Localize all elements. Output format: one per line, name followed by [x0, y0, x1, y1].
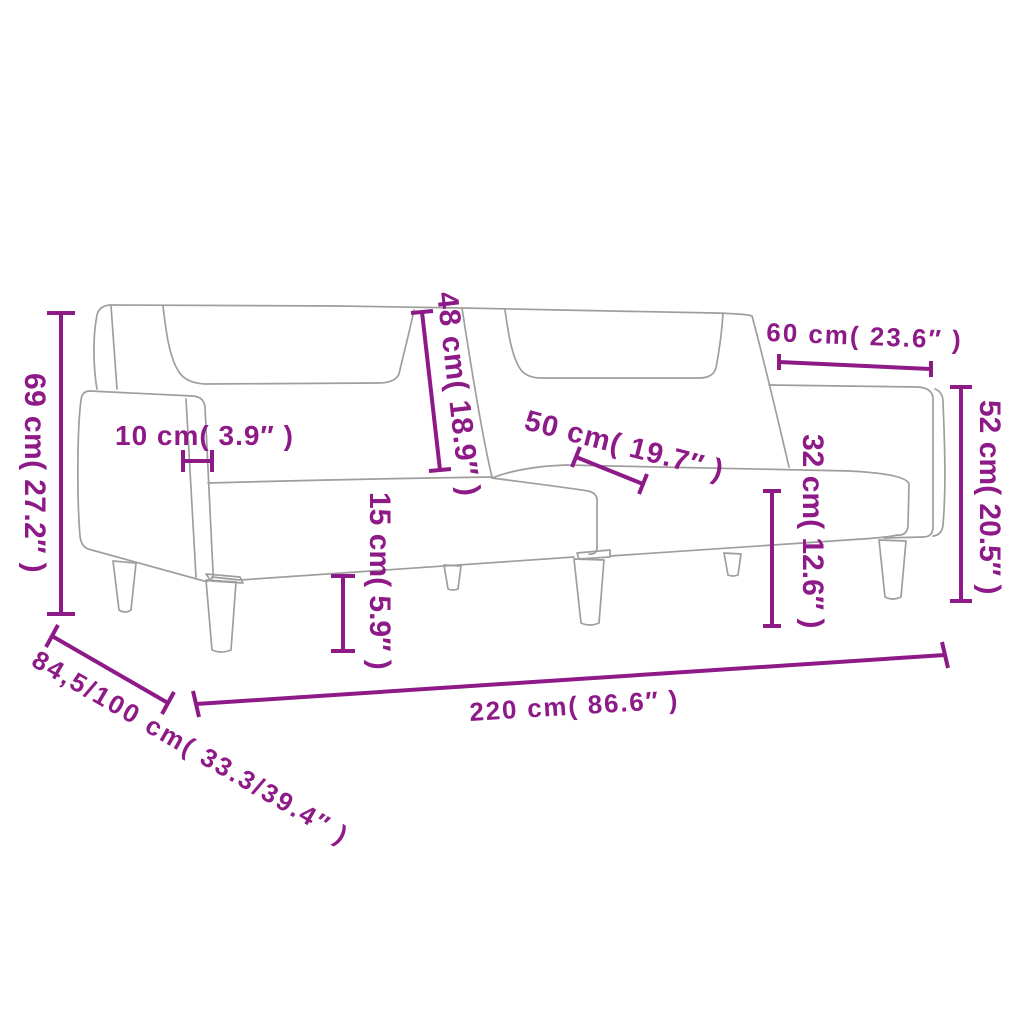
svg-text:32 cm( 12.6″ ): 32 cm( 12.6″ )	[796, 434, 829, 628]
svg-text:15 cm( 5.9″ ): 15 cm( 5.9″ )	[363, 492, 396, 670]
svg-text:52 cm( 20.5″ ): 52 cm( 20.5″ )	[973, 400, 1006, 594]
svg-text:69 cm( 27.2″ ): 69 cm( 27.2″ )	[18, 373, 51, 573]
svg-text:10 cm( 3.9″ ): 10 cm( 3.9″ )	[115, 420, 294, 451]
